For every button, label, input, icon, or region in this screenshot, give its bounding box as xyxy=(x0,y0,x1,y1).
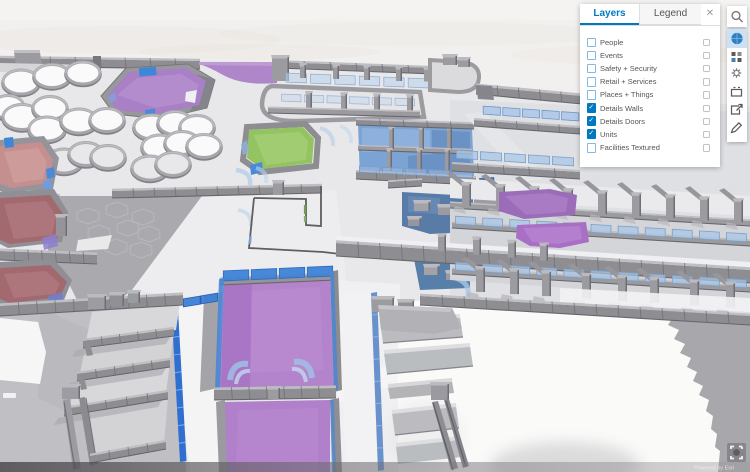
svg-text:Powered by Esri: Powered by Esri xyxy=(694,466,734,472)
